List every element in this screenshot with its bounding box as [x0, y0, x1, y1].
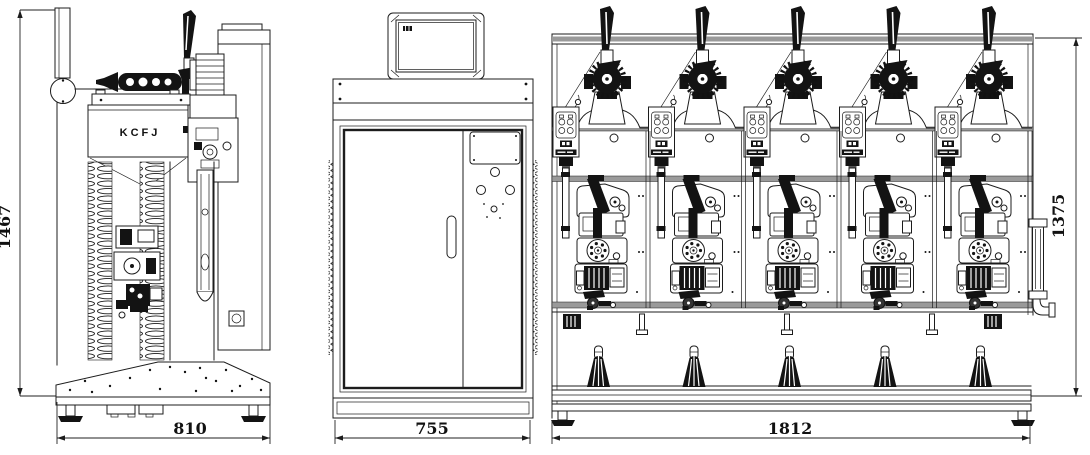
door-button [491, 168, 500, 177]
technical-drawing-sheet: 1467 [0, 0, 1090, 455]
door-button [506, 186, 515, 195]
cabinet-front-view: 755 [329, 13, 538, 444]
leveling-foot [58, 405, 83, 422]
leveling-foot [551, 411, 575, 426]
door-handle-slot [447, 216, 456, 258]
dimension-cabinet-width: 755 [335, 419, 530, 444]
door-button [491, 206, 497, 212]
cabinet-body [329, 79, 538, 418]
support-peg-row [637, 314, 938, 335]
screen-logo-mark [403, 26, 412, 31]
spindle-units-row [553, 6, 1032, 172]
feeder-box: KCFJ [88, 105, 188, 157]
dimension-side-height: 1467 [0, 10, 62, 396]
dim-label-side-height: 1467 [0, 205, 14, 250]
dimension-front-width: 1812 [552, 419, 1030, 444]
center-column [170, 162, 214, 360]
dim-label-front-width: 1812 [768, 419, 813, 438]
louver-column-left [88, 162, 112, 360]
front-view: 1812 1375 [551, 6, 1082, 444]
machine-base [56, 362, 270, 422]
hatch-block-left [563, 314, 581, 329]
side-lever-handle [183, 10, 196, 58]
side-view: 1467 [0, 8, 270, 444]
leveling-foot [241, 405, 266, 422]
mechanism-units-row [561, 131, 1032, 310]
dim-label-cabinet-width: 755 [415, 419, 448, 438]
cabinet-plinth [333, 398, 533, 418]
dimension-front-height: 1375 [1031, 38, 1082, 396]
leveling-foot [1011, 411, 1035, 426]
machine-orthographic-views: 1467 [0, 0, 1090, 455]
dim-label-front-height: 1375 [1049, 194, 1068, 239]
side-serration-right [533, 160, 538, 355]
dim-label-side-width: 810 [173, 419, 206, 438]
guide-roller [51, 79, 76, 104]
side-serration-left [329, 160, 334, 355]
door-button [477, 186, 486, 195]
control-window [470, 132, 520, 164]
hatch-block-right [984, 314, 1002, 329]
bobbin-row [587, 346, 992, 387]
machine-label: KCFJ [120, 127, 161, 139]
guide-post [55, 8, 70, 78]
